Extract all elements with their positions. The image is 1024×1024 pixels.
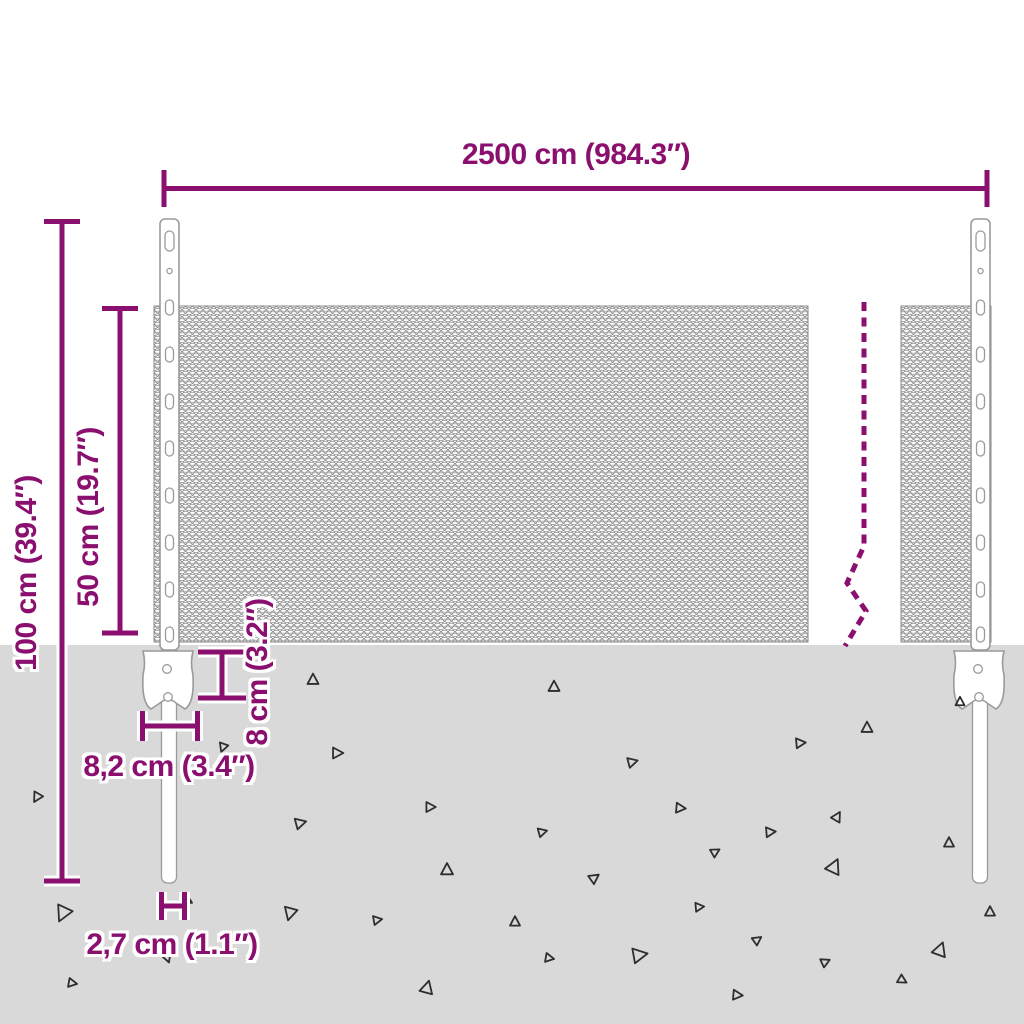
gravel-triangle [710, 845, 722, 857]
dim-post-width [162, 892, 185, 920]
gravel-triangle [796, 738, 806, 749]
gravel-triangle [820, 956, 831, 968]
gravel-triangle [825, 856, 845, 875]
gravel-triangle [733, 990, 743, 1001]
gravel-triangle [944, 837, 954, 846]
gravel-triangle [308, 674, 319, 684]
gravel-triangle [897, 974, 909, 986]
gravel-triangle [766, 827, 776, 838]
gravel-triangle [68, 978, 78, 988]
gravel-triangle [676, 803, 686, 814]
total-height-label: 100 cm (39.4″) [10, 475, 44, 671]
gravel-triangle [985, 906, 995, 915]
gravel-triangle [441, 863, 453, 874]
gravel-triangle [30, 791, 43, 804]
total-width-label: 2500 cm (984.3″) [462, 138, 690, 172]
gravel-triangle [420, 979, 436, 994]
gravel-triangle [333, 748, 343, 759]
gravel-triangle [632, 946, 648, 963]
gravel-triangle [627, 756, 639, 768]
gravel-triangle [426, 802, 435, 812]
gravel-triangle [52, 904, 73, 924]
gravel-triangle [588, 871, 601, 885]
gravel-triangle [862, 722, 873, 732]
gravel-triangle [545, 953, 555, 963]
gravel-triangle [831, 809, 844, 822]
mesh-height-label: 50 cm (19.7″) [72, 427, 106, 607]
gravel-triangle [295, 816, 308, 829]
dim-total-width [164, 170, 987, 207]
anchor-height-label: 8 cm (3.2″) [241, 598, 275, 745]
gravel-triangle [932, 940, 950, 957]
gravel-triangle [549, 681, 560, 691]
break-dashed-line [845, 302, 866, 646]
dim-mesh-height [102, 309, 138, 634]
gravel-triangle [538, 826, 549, 837]
gravel-triangle [695, 902, 704, 912]
fence-dimension-diagram: 2500 cm (984.3″) 100 cm (39.4″) 50 cm (1… [0, 0, 1024, 1024]
gravel-triangle [752, 933, 764, 945]
gravel-triangle [510, 916, 520, 925]
post-width-label: 2,7 cm (1.1″) [86, 928, 257, 962]
gravel-triangle [373, 915, 383, 925]
dim-anchor-height [198, 652, 246, 698]
gravel-triangle [282, 907, 298, 922]
anchor-width-label: 8,2 cm (3.4″) [83, 750, 254, 784]
